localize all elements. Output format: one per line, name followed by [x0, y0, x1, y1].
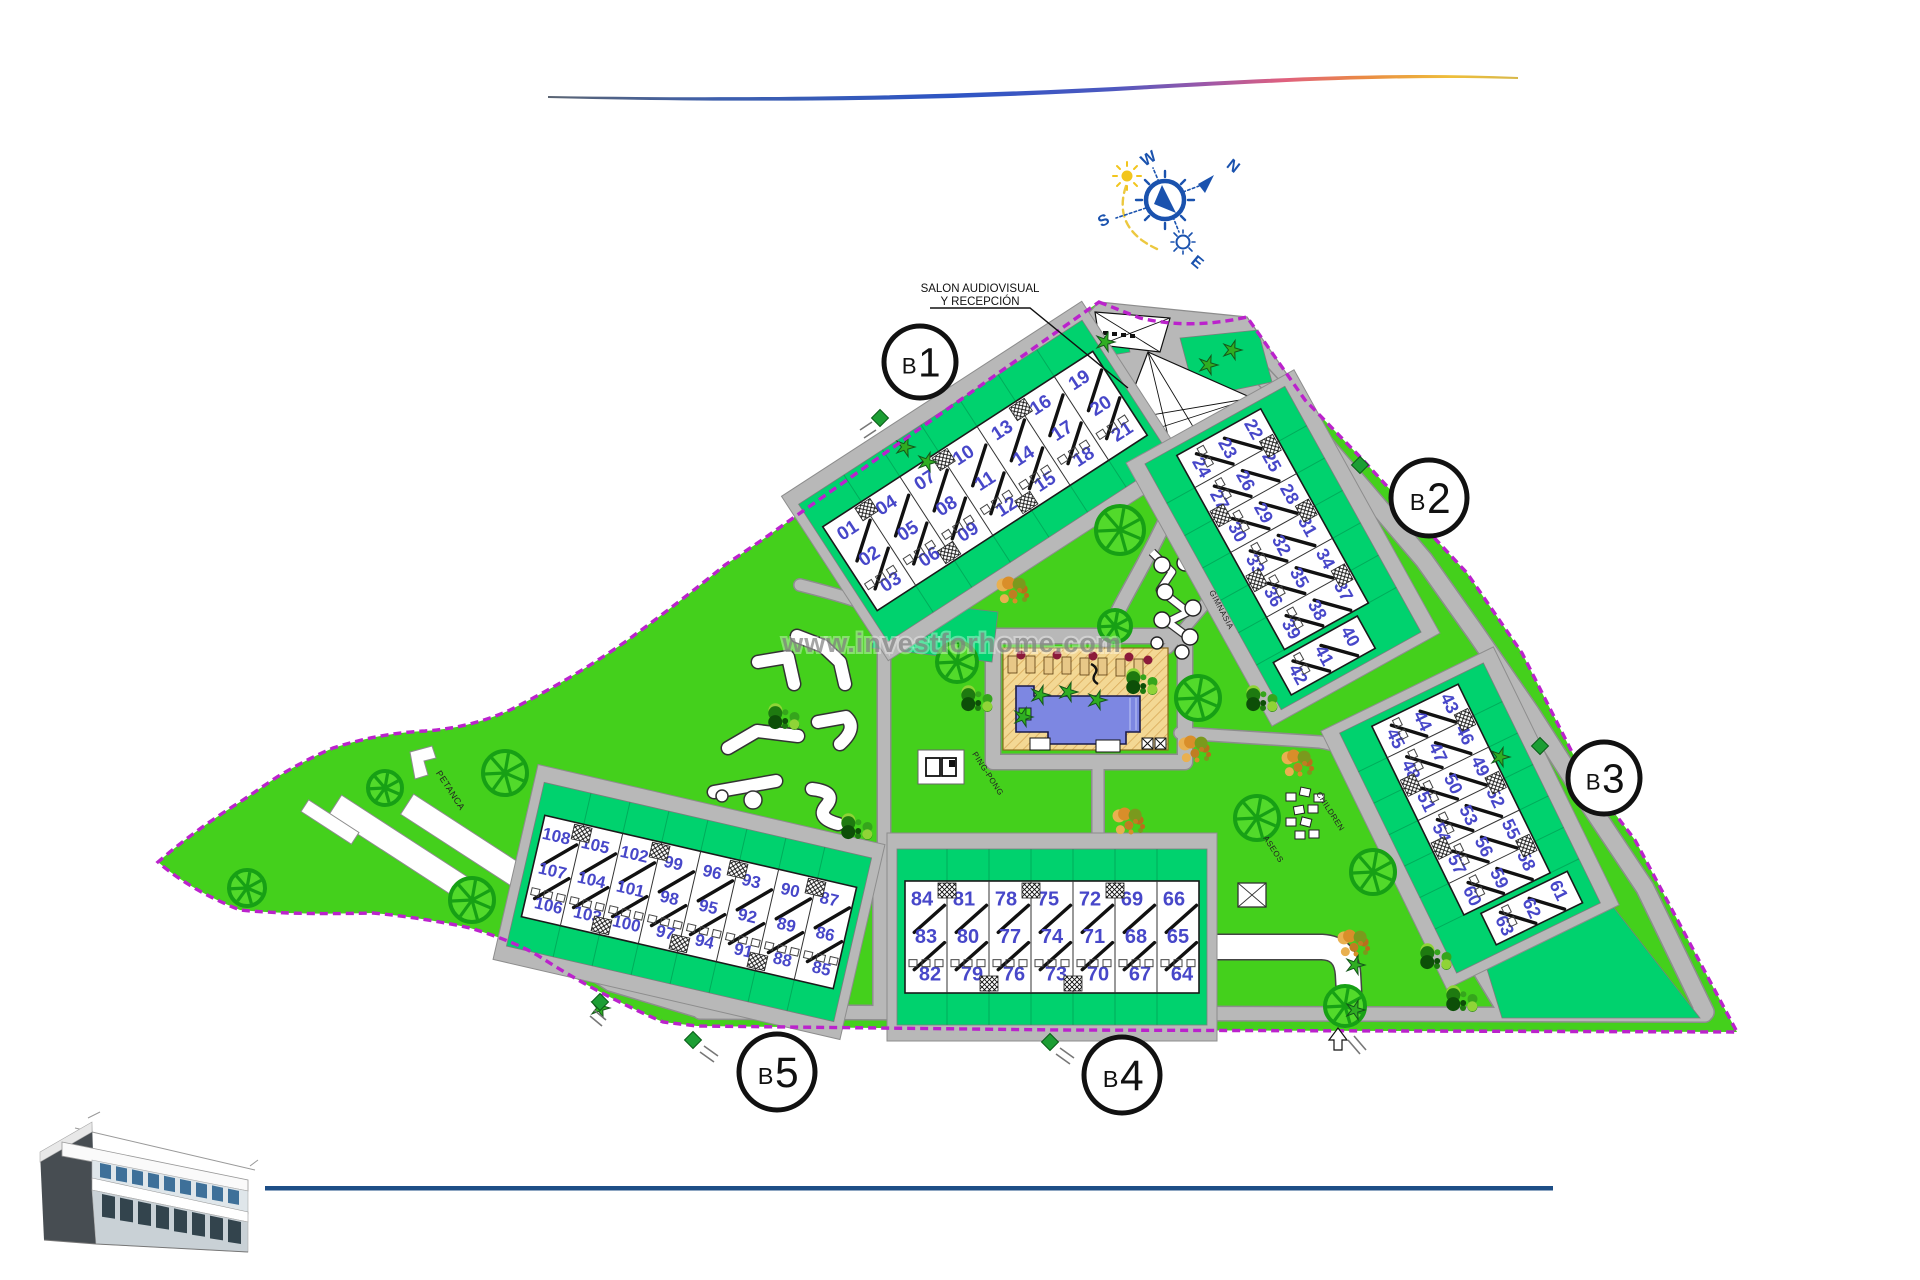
entrance-arrow-icon — [1329, 1028, 1347, 1050]
tree-icon — [450, 878, 494, 922]
unit-number: 66 — [1163, 889, 1185, 911]
unit-number: 83 — [915, 926, 937, 948]
building-label-b3: B3 — [1568, 742, 1640, 814]
reception-label-line2: Y RECEPCIÓN — [940, 295, 1019, 308]
svg-text:4: 4 — [1120, 1052, 1144, 1100]
svg-text:B: B — [1103, 1066, 1119, 1092]
unit-number: 77 — [999, 926, 1021, 948]
tree-icon — [368, 771, 402, 805]
unit-number: 65 — [1167, 926, 1189, 948]
tree-icon — [1351, 850, 1395, 894]
aseos-hut — [1238, 883, 1266, 907]
building-label-b4: B4 — [1084, 1037, 1160, 1113]
svg-text:5: 5 — [775, 1049, 799, 1097]
tree-icon — [1176, 676, 1220, 720]
svg-text:B: B — [902, 354, 917, 379]
building-label-b5: B5 — [739, 1034, 815, 1110]
pool-area — [1003, 648, 1168, 752]
footer-rule — [265, 1186, 1553, 1191]
tree-icon — [1235, 796, 1279, 840]
tree-icon — [1325, 986, 1365, 1026]
top-gradient-swoosh — [548, 75, 1518, 101]
tree-icon — [483, 751, 527, 795]
reception-label-line1: SALON AUDIOVISUAL — [921, 283, 1040, 295]
compass-east-label: E — [1187, 253, 1206, 273]
unit-number: 74 — [1041, 926, 1064, 948]
unit-number: 84 — [911, 889, 934, 911]
unit-number: 80 — [957, 926, 979, 948]
unit-number: 68 — [1125, 926, 1147, 948]
unit-number: 72 — [1079, 889, 1101, 911]
svg-text:B: B — [1586, 770, 1601, 795]
tree-icon — [1096, 506, 1144, 554]
svg-text:B: B — [758, 1063, 774, 1089]
svg-text:1: 1 — [918, 339, 940, 385]
svg-text:3: 3 — [1602, 755, 1624, 801]
watermark: www.investforhome.com — [781, 628, 1122, 658]
compass-south-label: S — [1095, 211, 1113, 231]
building-b4: 8483828180797877767574737271706968676665… — [887, 833, 1217, 1041]
site-plan-page: W N S E — [0, 0, 1920, 1280]
east-sun-glyph — [1177, 236, 1190, 249]
building-label-b1: B1 — [884, 326, 956, 398]
unit-number: 78 — [995, 889, 1017, 911]
site-plan-drawing: W N S E — [0, 0, 1920, 1280]
tree-icon — [229, 870, 265, 906]
svg-text:B: B — [1410, 489, 1426, 515]
north-arrow-icon — [1198, 175, 1214, 193]
building-label-b2: B2 — [1391, 460, 1467, 536]
svg-text:2: 2 — [1427, 475, 1451, 523]
compass-west-label: W — [1138, 148, 1160, 171]
ping-pong-table — [918, 750, 964, 784]
developer-building-render — [40, 1112, 258, 1252]
unit-number: 71 — [1083, 926, 1105, 948]
sun-icon — [1113, 162, 1141, 190]
compass-needle — [1154, 185, 1176, 213]
compass-rose: W N S E — [1095, 148, 1242, 273]
compass-north-label: N — [1223, 156, 1243, 177]
sun-path-arc — [1123, 186, 1157, 249]
